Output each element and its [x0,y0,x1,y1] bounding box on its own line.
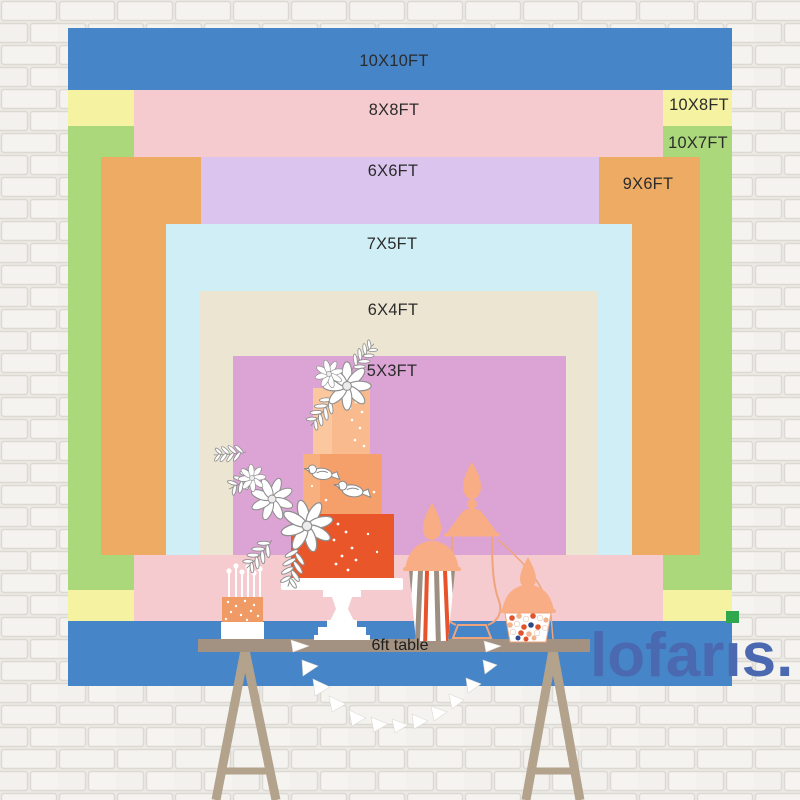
logo-period: . [776,621,793,690]
table-size-label: 6ft table [372,637,429,655]
logo-i-glyph: ı [724,621,741,690]
size-label-7x5ft: 7X5FT [367,234,417,254]
size-label-8x8ft: 8X8FT [369,100,419,120]
logo-text-right: s [742,621,776,690]
size-label-5x3ft: 5X3FT [367,361,417,381]
size-label-6x6ft: 6X6FT [368,161,418,181]
logo-accent-icon [726,611,739,623]
size-label-10x7ft: 10X7FT [668,133,728,153]
logo-text-left: lofar [590,621,724,690]
size-label-10x8ft: 10X8FT [669,95,729,115]
size-label-6x4ft: 6X4FT [368,300,418,320]
product-image: 10X10FT10X8FT10X7FT8X8FT9X6FT6X6FT7X5FT6… [0,0,800,800]
size-label-10x10ft: 10X10FT [359,51,428,71]
brand-logo: lofarıs. [590,656,793,726]
size-label-9x6ft: 9X6FT [623,174,673,194]
